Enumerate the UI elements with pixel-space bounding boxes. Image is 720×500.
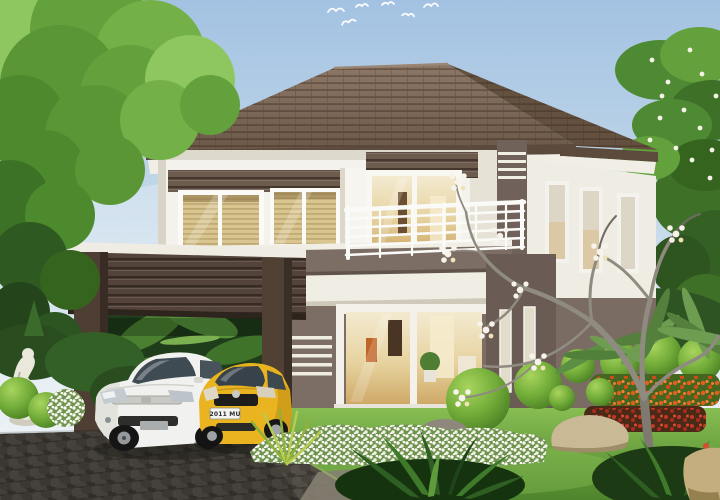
interior-artwork [388, 320, 402, 356]
wing-window [545, 181, 569, 263]
honda-emblem [141, 397, 151, 403]
bumper-intake [216, 423, 256, 431]
house-rendering: 2011 MU [0, 0, 720, 500]
topiary-ball [586, 378, 614, 406]
side-mirror [194, 377, 203, 383]
license-plate-text: 2011 MU [209, 411, 240, 418]
license-plate [140, 421, 168, 430]
bloom-bush [47, 389, 85, 427]
wing-window [617, 193, 639, 273]
window-left [178, 190, 264, 252]
wing-window [579, 187, 603, 273]
license-plate: 2011 MU [209, 408, 240, 419]
window-right [270, 188, 340, 248]
fog-light [105, 417, 111, 423]
interior-plant [420, 352, 440, 372]
badge [232, 390, 240, 398]
topiary-ball [549, 385, 575, 411]
